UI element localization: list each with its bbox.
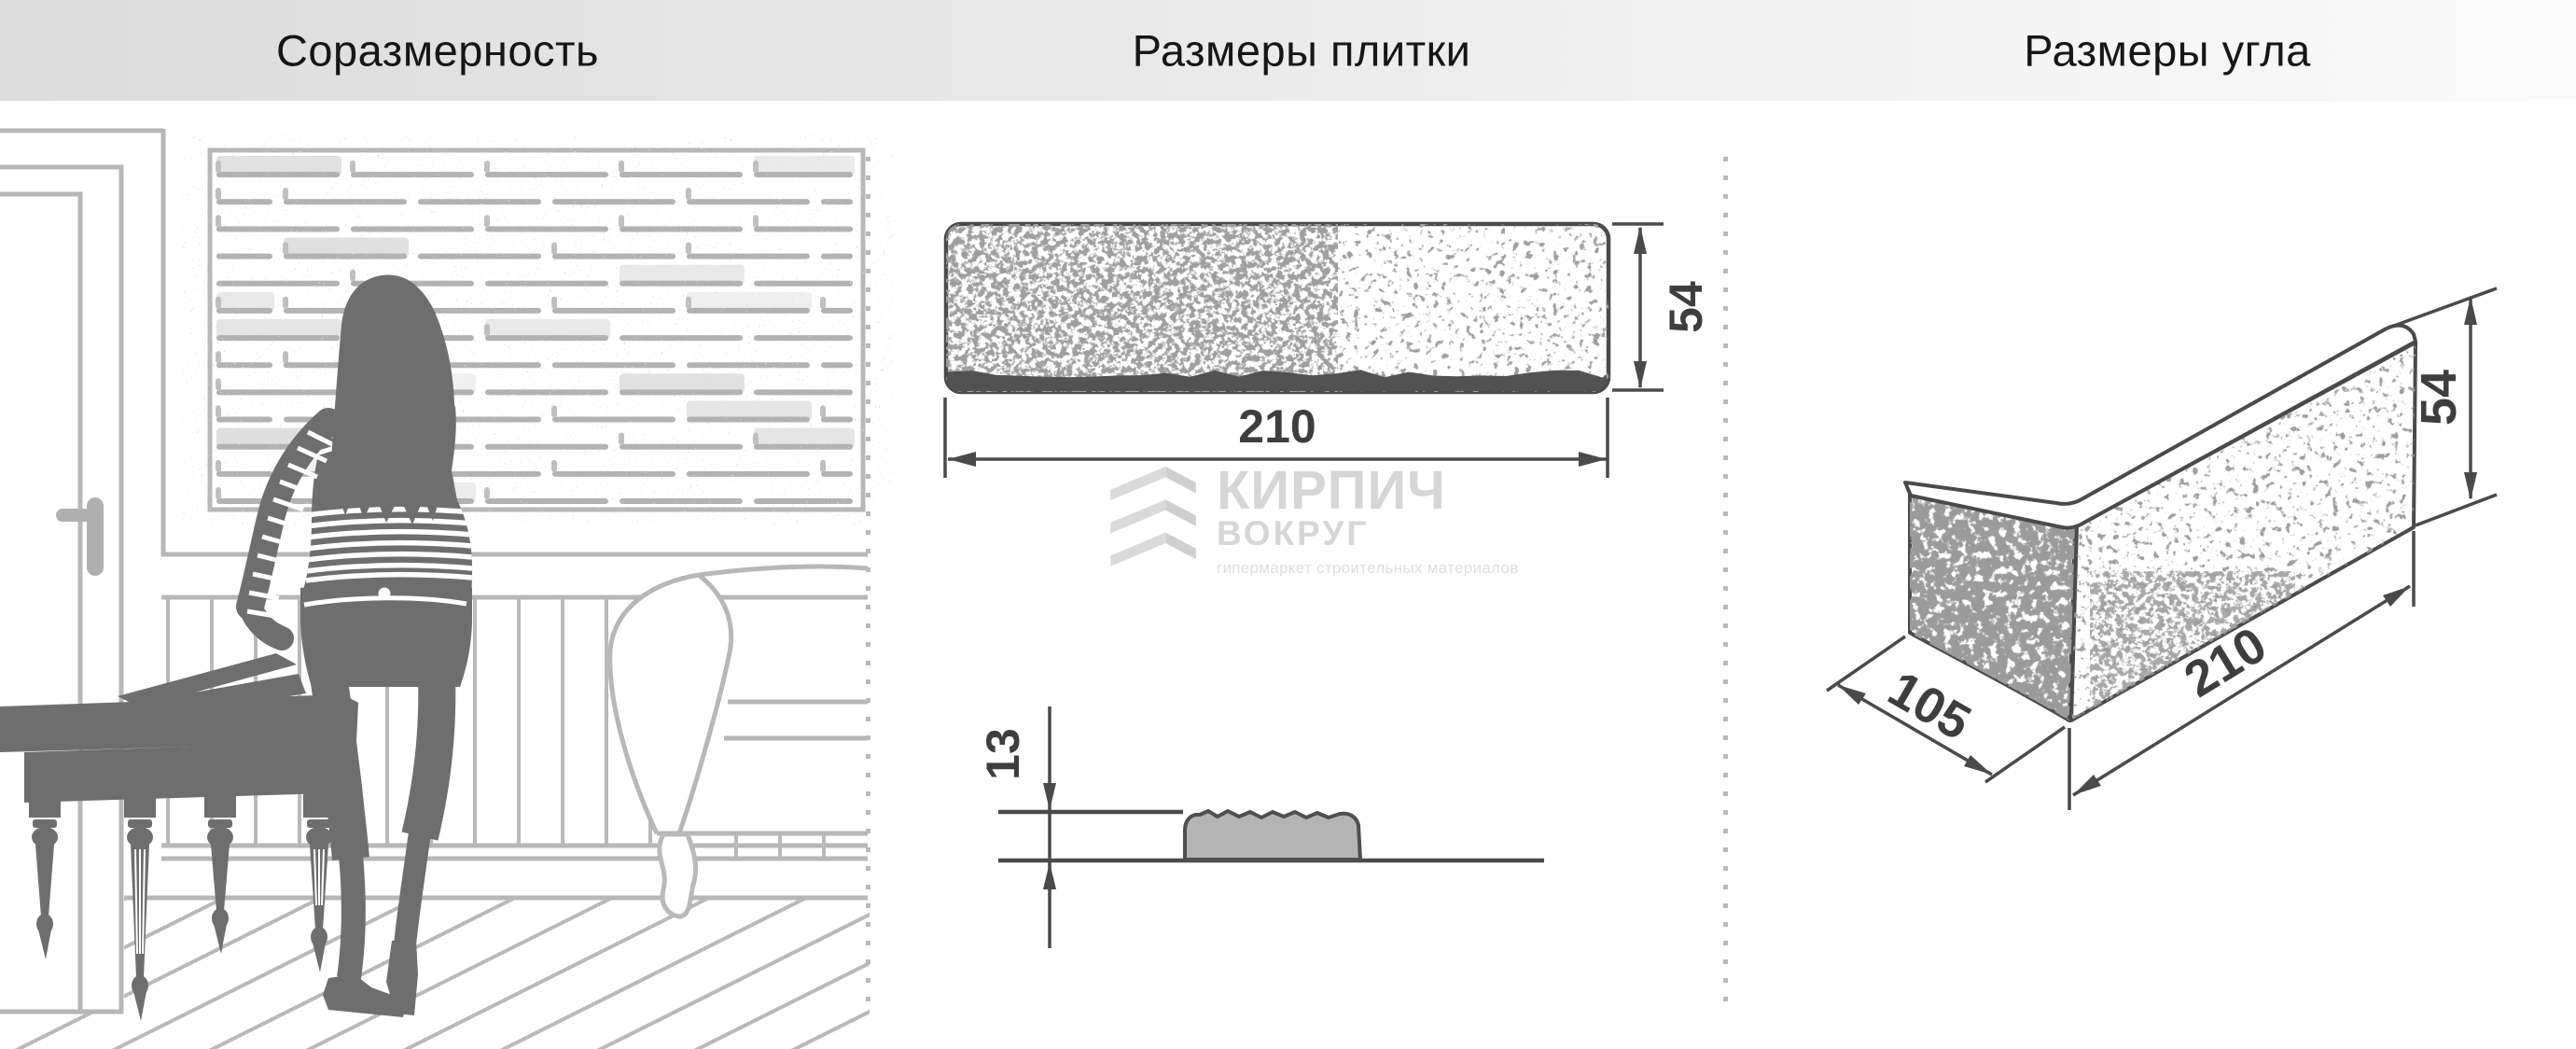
separator-dot bbox=[1723, 455, 1728, 460]
floor bbox=[0, 899, 1289, 1049]
corner-depth-label: 105 bbox=[1879, 661, 1980, 751]
separator-dot bbox=[866, 866, 870, 871]
separator-dot bbox=[866, 922, 870, 927]
tile-height-label: 54 bbox=[1660, 281, 1712, 333]
separator-dot bbox=[866, 567, 870, 572]
brand-name-line2: ВОКРУГ bbox=[1217, 516, 1519, 551]
separator-dot bbox=[1723, 754, 1728, 759]
door-handle-grip bbox=[87, 497, 104, 576]
separator-dot bbox=[866, 903, 870, 908]
arrow-icon bbox=[1634, 226, 1647, 254]
separator-dot bbox=[1723, 530, 1728, 535]
separator-dot bbox=[1723, 157, 1728, 161]
separator-dot bbox=[866, 698, 870, 703]
separator-dot bbox=[866, 978, 870, 983]
separator-dot bbox=[866, 213, 870, 217]
arrow-icon bbox=[2464, 472, 2477, 500]
separator-dot bbox=[866, 493, 870, 497]
leg-block bbox=[204, 791, 236, 818]
separator-dot bbox=[1723, 698, 1728, 703]
floor-plank-line bbox=[884, 899, 1192, 1049]
table-leg bbox=[204, 791, 236, 954]
separator-dot bbox=[1723, 549, 1728, 553]
separator-dot bbox=[866, 885, 870, 889]
separator-dot bbox=[866, 829, 870, 833]
leg-bulb bbox=[207, 827, 233, 847]
separator-dot bbox=[1723, 325, 1728, 329]
arrow-icon bbox=[2073, 775, 2101, 795]
table-apron bbox=[24, 742, 328, 803]
leg-ring bbox=[208, 819, 232, 828]
separator-dot bbox=[1723, 586, 1728, 591]
arrow-icon bbox=[1579, 452, 1607, 467]
separator-dot bbox=[1723, 175, 1728, 180]
separator-dot bbox=[866, 194, 870, 199]
separator-dot bbox=[1723, 903, 1728, 908]
separator-dot bbox=[866, 530, 870, 535]
separator-dot bbox=[1723, 194, 1728, 199]
separator-dot bbox=[1723, 437, 1728, 441]
separator-dot bbox=[866, 959, 870, 964]
separator-dot bbox=[1723, 474, 1728, 479]
separator-dot bbox=[1723, 623, 1728, 628]
separator-dot bbox=[866, 399, 870, 404]
leg-bulb bbox=[306, 827, 332, 847]
leg-ring bbox=[307, 819, 331, 828]
separator-dot bbox=[1723, 661, 1728, 665]
woman-leg-far-calf bbox=[405, 832, 420, 944]
separator-dot bbox=[866, 997, 870, 1001]
separator-dot bbox=[1723, 511, 1728, 516]
separator-dot bbox=[866, 511, 870, 516]
separator-dot bbox=[1723, 959, 1728, 964]
separator-dot bbox=[866, 362, 870, 367]
separator-dot bbox=[866, 455, 870, 460]
brand-tagline: гипермаркет строительных материалов bbox=[1217, 559, 1519, 578]
profile-brick-section bbox=[1185, 811, 1360, 860]
woman-leg-near-calf bbox=[349, 855, 354, 978]
leg-block bbox=[124, 791, 156, 818]
door bbox=[0, 164, 124, 1012]
separator-dot bbox=[1723, 829, 1728, 833]
floor-plank-line bbox=[593, 899, 901, 1049]
sofa-back-line bbox=[699, 566, 868, 575]
extension-line bbox=[2416, 495, 2497, 525]
separator-dot bbox=[1723, 679, 1728, 684]
separator-dot bbox=[866, 287, 870, 292]
separator-dot bbox=[1723, 343, 1728, 348]
arrow-icon bbox=[948, 452, 976, 467]
separator-dot bbox=[866, 586, 870, 591]
floor-plank-lines bbox=[0, 899, 1289, 1049]
leg-tip bbox=[133, 991, 146, 1021]
tile-length-label: 210 bbox=[1238, 400, 1316, 453]
door-leaf bbox=[0, 164, 124, 1012]
separator-dot bbox=[866, 810, 870, 815]
separator-dot bbox=[1723, 231, 1728, 236]
extension-line bbox=[1985, 727, 2065, 782]
arrow-icon bbox=[2383, 586, 2410, 607]
separator-dot bbox=[866, 437, 870, 441]
woman-leg-near-thigh bbox=[328, 676, 351, 859]
separator-dot bbox=[1723, 418, 1728, 423]
separator-dot bbox=[1723, 941, 1728, 945]
separator-dot bbox=[1723, 810, 1728, 815]
separator-dot bbox=[1723, 362, 1728, 367]
separator-dot bbox=[866, 269, 870, 273]
separator-dot bbox=[866, 250, 870, 255]
separator-dot bbox=[866, 343, 870, 348]
sofa-leg bbox=[660, 834, 696, 916]
separator-dot bbox=[1723, 605, 1728, 609]
jeans-button bbox=[379, 588, 391, 600]
table-leg bbox=[124, 791, 156, 1021]
separator-dot bbox=[1723, 381, 1728, 385]
separator-dot bbox=[866, 642, 870, 647]
separator-dot bbox=[866, 623, 870, 628]
floor-plank-line bbox=[690, 899, 998, 1049]
separator-dot bbox=[866, 661, 870, 665]
watermark-logo: КИРПИЧ ВОКРУГ гипермаркет строительных м… bbox=[1107, 465, 1519, 582]
woman-leg-far-thigh bbox=[420, 676, 437, 836]
floor-plank-line bbox=[108, 899, 416, 1049]
arrow-icon bbox=[1838, 685, 1866, 705]
tile-dimension-drawing: 210 54 13 bbox=[945, 224, 1712, 948]
separator-dot bbox=[866, 773, 870, 777]
separator-dot bbox=[866, 381, 870, 385]
corner-height-label: 54 bbox=[2411, 370, 2467, 426]
separator-dot bbox=[1723, 567, 1728, 572]
separator-dot bbox=[1723, 306, 1728, 311]
separator-dot bbox=[866, 735, 870, 740]
floor-plank-line bbox=[399, 899, 707, 1049]
separator-dot bbox=[1723, 269, 1728, 273]
separator-dot bbox=[1723, 250, 1728, 255]
separator-dot bbox=[1723, 997, 1728, 1001]
separator-dot bbox=[866, 157, 870, 161]
separator-dot bbox=[1723, 773, 1728, 777]
separator-dot bbox=[1723, 847, 1728, 852]
separator-dot bbox=[866, 791, 870, 796]
separator-dot bbox=[1723, 287, 1728, 292]
separator-dot bbox=[866, 847, 870, 852]
separator-dot bbox=[866, 325, 870, 329]
brand-bricks-icon bbox=[1107, 465, 1200, 582]
separator-dot bbox=[866, 474, 870, 479]
separator-dot bbox=[866, 231, 870, 236]
separator-dot bbox=[1723, 399, 1728, 404]
separator-dot bbox=[1723, 717, 1728, 721]
sofa bbox=[608, 566, 868, 916]
leg-bulb bbox=[32, 827, 58, 847]
separator-dot bbox=[1723, 791, 1728, 796]
tile-profile-drawing: 13 bbox=[977, 706, 1544, 948]
separator-dot bbox=[1723, 642, 1728, 647]
leg-ring bbox=[128, 819, 152, 828]
separator-dot bbox=[1723, 922, 1728, 927]
brand-name-line1: КИРПИЧ bbox=[1217, 465, 1519, 516]
separator-dot bbox=[866, 941, 870, 945]
separator-dot bbox=[1723, 978, 1728, 983]
separator-dot bbox=[1723, 735, 1728, 740]
tile-texture bbox=[946, 224, 1608, 392]
extension-line bbox=[2394, 288, 2497, 326]
separator-dot bbox=[866, 306, 870, 311]
tile-thickness-label: 13 bbox=[977, 728, 1029, 780]
separator-dot bbox=[1723, 866, 1728, 871]
floor-plank-line bbox=[982, 899, 1289, 1049]
woman-fingers bbox=[265, 623, 291, 646]
separator-dot bbox=[866, 679, 870, 684]
arrow-icon bbox=[1043, 783, 1056, 810]
separator-dot bbox=[866, 418, 870, 423]
leg-ring bbox=[33, 819, 57, 828]
arrow-icon bbox=[1964, 755, 1992, 775]
separator-dot bbox=[866, 549, 870, 553]
leg-block bbox=[29, 791, 61, 818]
separator-dot bbox=[1723, 885, 1728, 889]
separator-dot bbox=[866, 717, 870, 721]
arrow-icon bbox=[1634, 361, 1647, 389]
leg-bulb bbox=[127, 827, 153, 847]
corner-dimension-drawing: 54 210 105 bbox=[1827, 288, 2497, 810]
separator-dot bbox=[866, 605, 870, 609]
separator-dot bbox=[1723, 493, 1728, 497]
separator-dot bbox=[866, 175, 870, 180]
separator-dot bbox=[866, 754, 870, 759]
door-handle-icon bbox=[56, 509, 91, 522]
watermark-text: КИРПИЧ ВОКРУГ гипермаркет строительных м… bbox=[1217, 465, 1519, 578]
leg-tip bbox=[313, 943, 326, 972]
arrow-icon bbox=[1043, 862, 1056, 889]
separator-dot bbox=[1723, 213, 1728, 217]
floor-plank-line bbox=[496, 899, 804, 1049]
